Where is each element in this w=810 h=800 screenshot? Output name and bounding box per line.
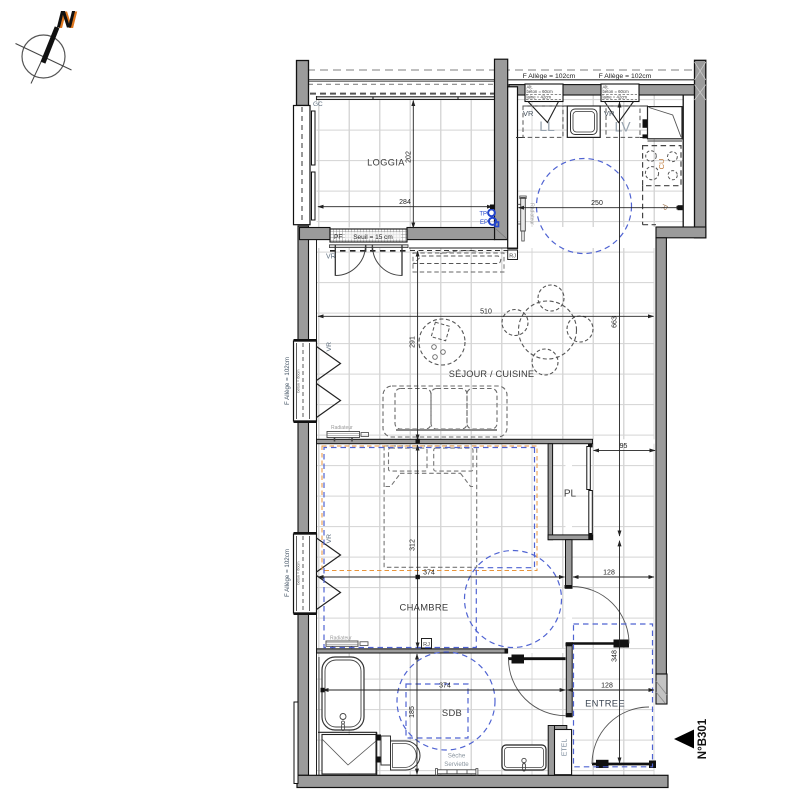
svg-text:291: 291 — [410, 336, 417, 348]
svg-text:F Allège = 102cm: F Allège = 102cm — [284, 549, 291, 597]
svg-text:béton = 60cm: béton = 60cm — [527, 89, 554, 94]
svg-text:laine = 42cm: laine = 42cm — [603, 94, 628, 99]
svg-text:LOGGIA: LOGGIA — [367, 158, 405, 168]
svg-text:LV: LV — [614, 119, 631, 135]
svg-text:95: 95 — [620, 443, 628, 450]
svg-text:128: 128 — [603, 570, 615, 577]
svg-text:F Allège = 102cm: F Allège = 102cm — [284, 357, 291, 405]
svg-text:Sèche: Sèche — [448, 753, 466, 760]
svg-text:128: 128 — [601, 683, 613, 690]
svg-text:LL: LL — [539, 118, 555, 134]
svg-text:béton = 60cm: béton = 60cm — [297, 369, 301, 392]
svg-text:CU: CU — [657, 159, 666, 170]
svg-text:Radiateur: Radiateur — [529, 203, 535, 225]
svg-text:RJ: RJ — [509, 254, 516, 260]
svg-text:GC: GC — [313, 101, 323, 108]
svg-text:Seuil = 15 cm: Seuil = 15 cm — [353, 234, 393, 241]
svg-text:348: 348 — [612, 650, 619, 662]
svg-text:TP: TP — [479, 212, 487, 218]
svg-text:F Allège = 102cm: F Allège = 102cm — [599, 73, 652, 80]
svg-text:VR: VR — [326, 254, 336, 261]
svg-text:N°B301: N°B301 — [697, 718, 709, 759]
svg-text:Serviette: Serviette — [444, 761, 469, 768]
svg-text:CHAMBRE: CHAMBRE — [400, 602, 449, 613]
svg-text:PL: PL — [564, 489, 577, 500]
svg-text:250: 250 — [591, 200, 603, 207]
svg-text:VR: VR — [326, 534, 333, 544]
svg-text:EP: EP — [480, 220, 488, 226]
svg-text:374: 374 — [423, 570, 435, 577]
svg-text:VR: VR — [523, 109, 534, 118]
svg-text:663: 663 — [612, 316, 619, 328]
svg-text:202: 202 — [406, 151, 413, 163]
svg-text:ENTREE: ENTREE — [585, 698, 625, 709]
svg-text:SÉJOUR / CUISINE: SÉJOUR / CUISINE — [449, 369, 534, 379]
svg-text:Radiateur: Radiateur — [330, 636, 352, 642]
svg-text:SDB: SDB — [442, 707, 462, 718]
svg-text:ETEL: ETEL — [562, 739, 569, 757]
svg-text:374: 374 — [439, 683, 451, 690]
svg-text:185: 185 — [409, 706, 416, 718]
svg-text:510: 510 — [480, 309, 492, 316]
svg-text:Radiateur: Radiateur — [331, 425, 353, 431]
svg-text:laine = 42cm: laine = 42cm — [527, 94, 552, 99]
svg-text:284: 284 — [399, 199, 411, 206]
svg-text:VR: VR — [326, 342, 333, 352]
svg-text:PF: PF — [334, 234, 342, 241]
svg-text:béton = 60cm: béton = 60cm — [297, 561, 301, 584]
svg-text:béton = 60cm: béton = 60cm — [603, 89, 630, 94]
svg-text:312: 312 — [410, 539, 417, 551]
svg-text:F Allège = 102cm: F Allège = 102cm — [523, 73, 576, 80]
